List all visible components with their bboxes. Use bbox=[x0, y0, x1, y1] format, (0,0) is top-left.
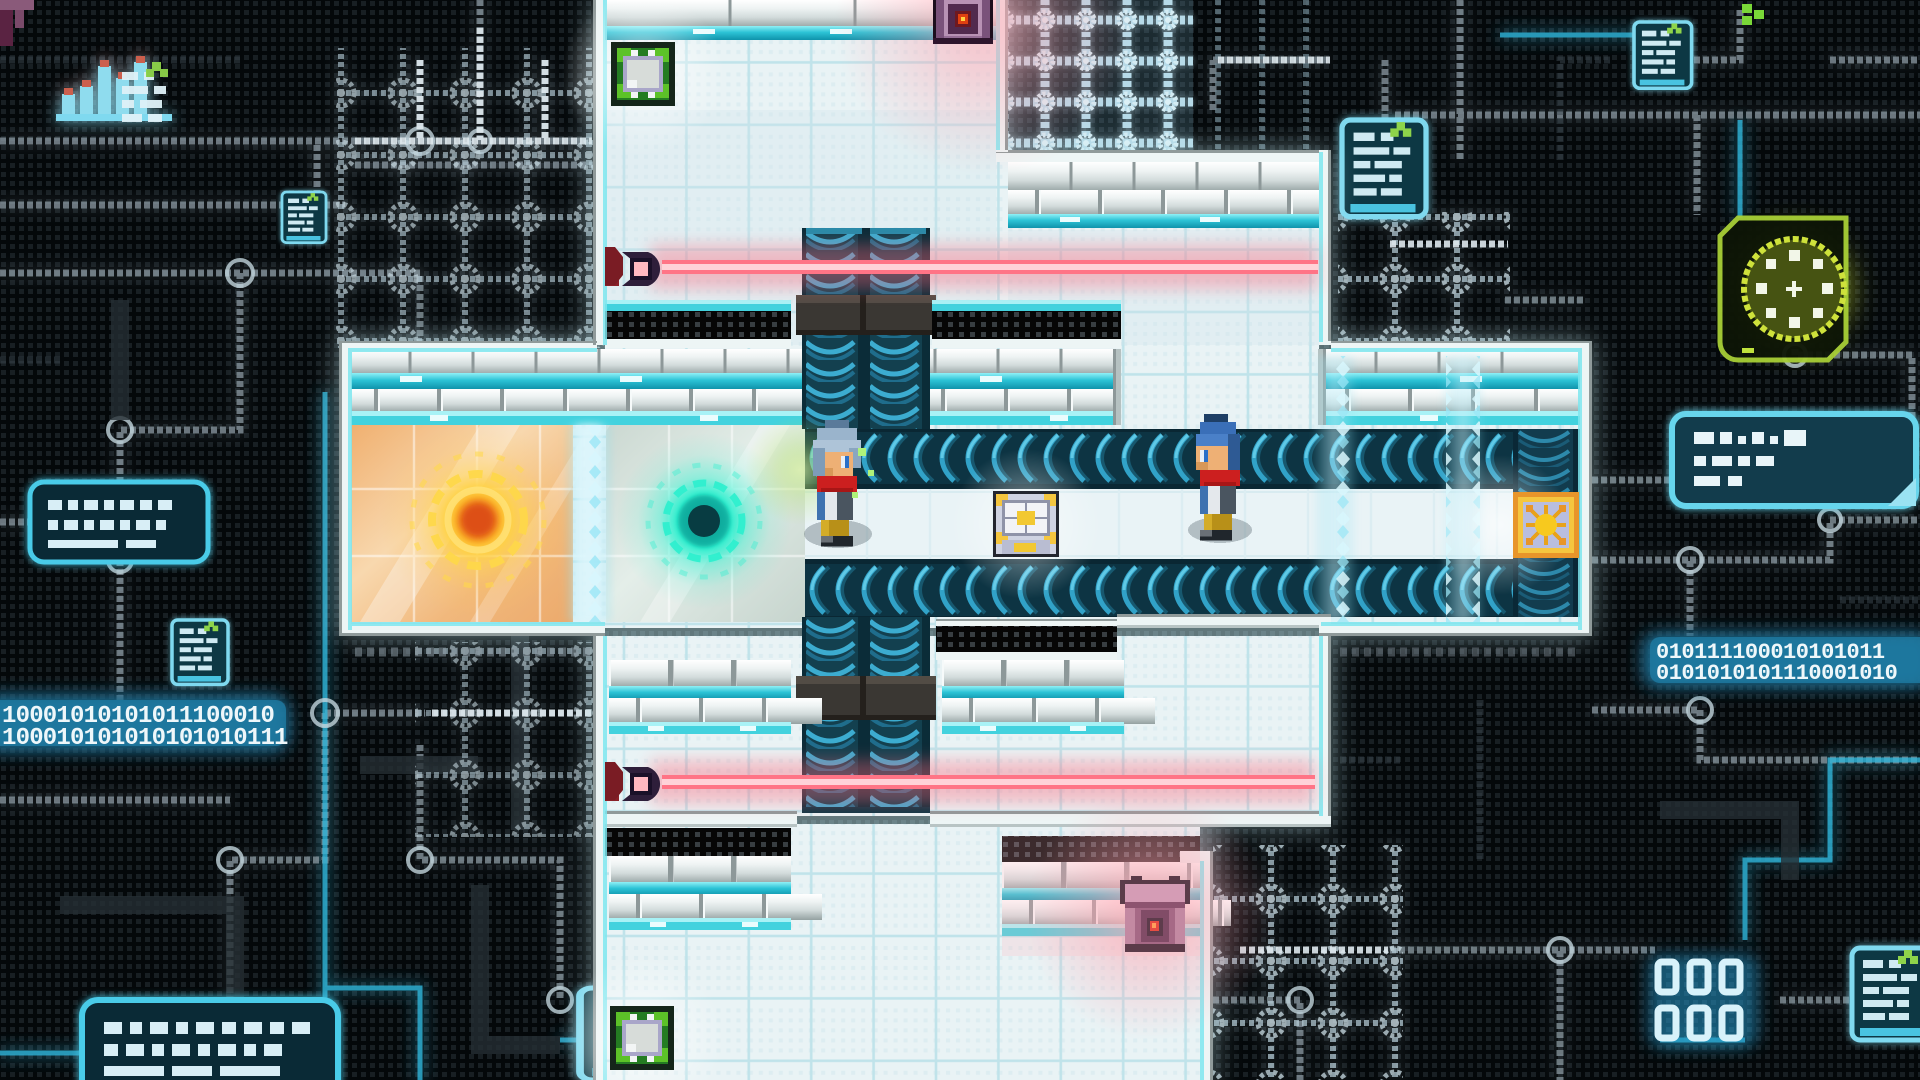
svg-text:100010101010101010111: 100010101010101010111 bbox=[2, 725, 288, 752]
svg-text:0101010101110001010: 0101010101110001010 bbox=[1656, 661, 1897, 686]
